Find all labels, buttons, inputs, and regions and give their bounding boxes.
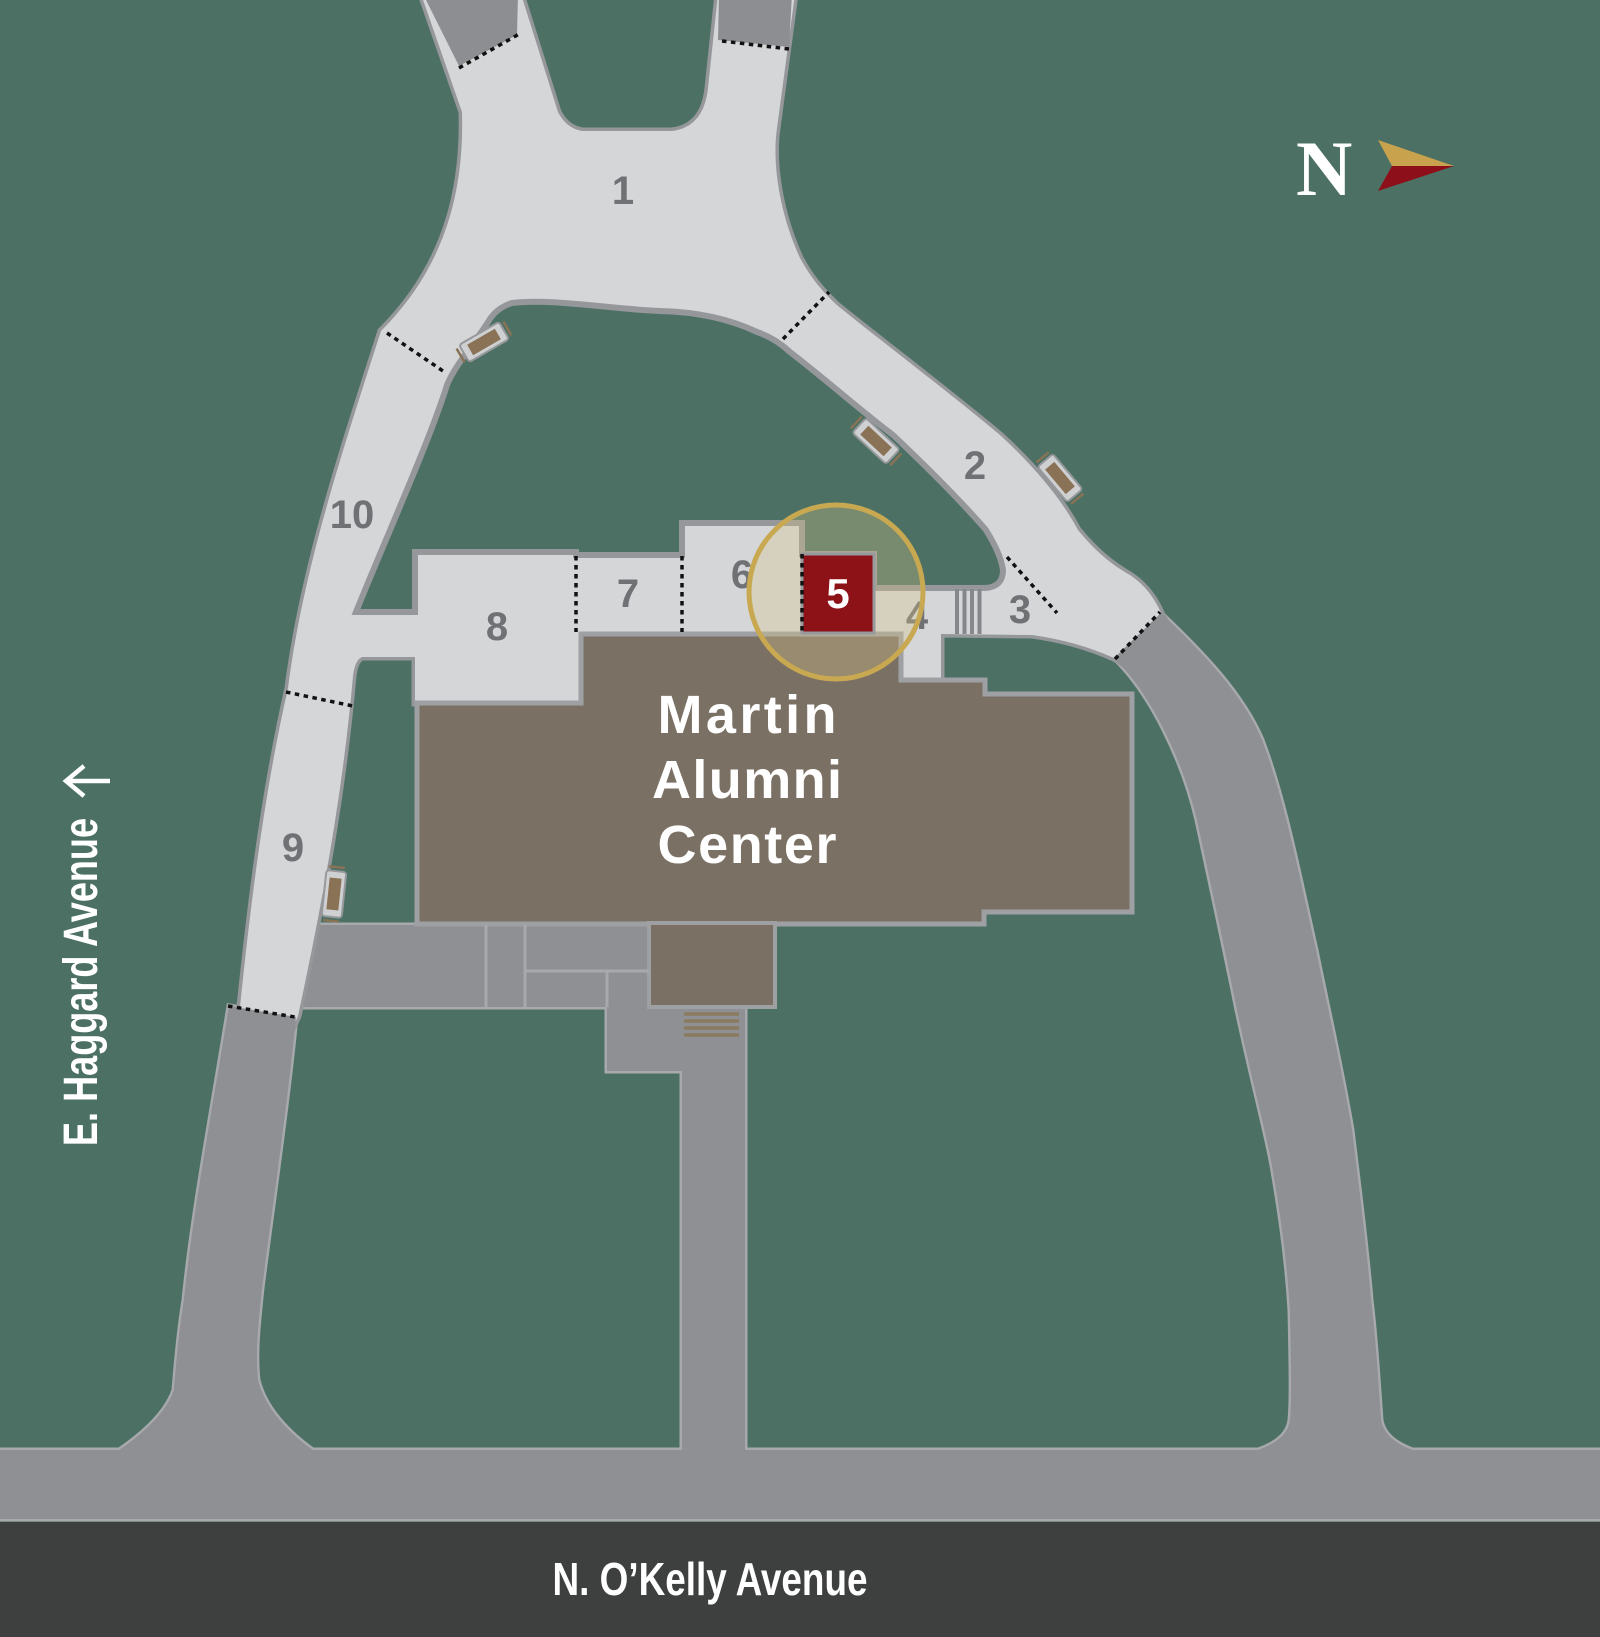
svg-text:9: 9 [282, 826, 304, 870]
svg-text:E. Haggard Avenue: E. Haggard Avenue [55, 818, 108, 1146]
svg-text:8: 8 [486, 605, 508, 649]
svg-text:3: 3 [1009, 588, 1031, 632]
svg-text:2: 2 [964, 444, 986, 488]
svg-text:1: 1 [612, 169, 634, 213]
svg-text:Alumni: Alumni [652, 750, 842, 810]
svg-text:10: 10 [330, 493, 375, 537]
svg-text:N. O’Kelly Avenue: N. O’Kelly Avenue [553, 1553, 868, 1605]
svg-text:5: 5 [826, 570, 849, 617]
svg-text:Martin: Martin [658, 685, 837, 745]
svg-text:7: 7 [617, 572, 639, 616]
svg-text:Center: Center [658, 815, 837, 875]
svg-text:N: N [1296, 125, 1352, 212]
